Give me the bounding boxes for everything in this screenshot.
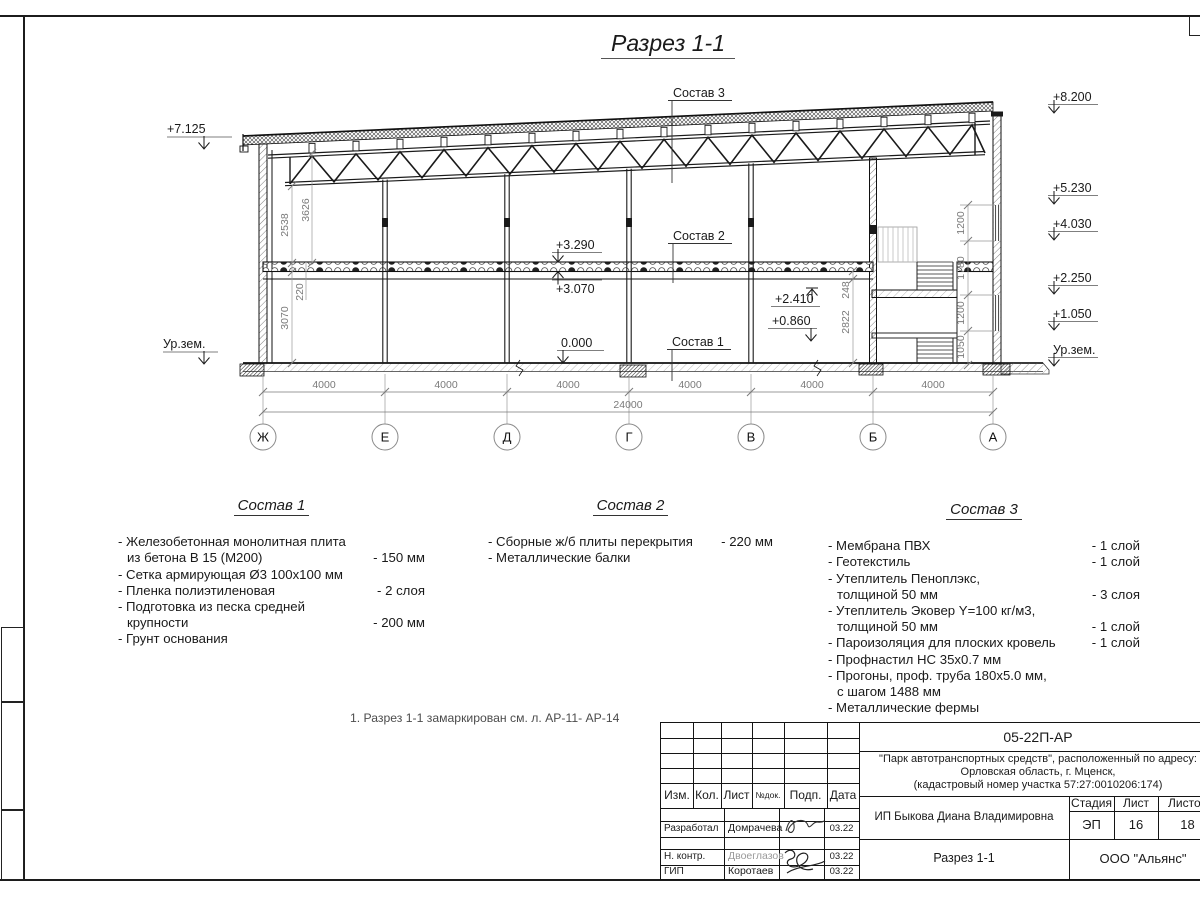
tb-stage-label: Стадия xyxy=(1069,796,1114,811)
composition-3-title: Состав 3 xyxy=(946,501,1022,520)
dims-bottom: 4000 4000 4000 4000 4000 4000 24000 Ж Е … xyxy=(250,374,1006,450)
callout-sostav-3: Состав 3 xyxy=(673,86,725,100)
elev-mezz-bot: +0.860 xyxy=(772,314,811,328)
tb-client: ИП Быкова Диана Владимировна xyxy=(859,796,1069,839)
tb-role-developer: Разработал xyxy=(664,821,722,837)
elev-right-2: +5.230 xyxy=(1053,181,1092,195)
list-item: крупности- 200 мм xyxy=(118,615,425,631)
sheet-note: 1. Разрез 1-1 замаркирован см. л. АР-11-… xyxy=(350,711,619,725)
tb-name-gip: Коротаев xyxy=(728,865,778,879)
elev-slab-bot: +3.070 xyxy=(556,282,595,296)
tb-role-gip: ГИП xyxy=(664,865,722,879)
tb-project-line3: (кадастровый номер участка 57:27:0010206… xyxy=(859,779,1200,792)
tb-name-developer: Домрачева xyxy=(728,821,778,837)
tb-col-izm: Изм. xyxy=(661,783,693,808)
list-item: - Утеплитель Пеноплэкс, xyxy=(828,571,1140,587)
dim-1200-lower: 1200 xyxy=(955,301,967,325)
callouts: Состав 3 Состав 2 Состав 1 xyxy=(667,86,732,381)
list-item: толщиной 50 мм- 1 слой xyxy=(828,619,1140,635)
axis-label: Е xyxy=(381,430,390,445)
wall-left xyxy=(259,144,267,363)
dim-2538: 2538 xyxy=(279,213,291,237)
list-item: - Геотекстиль- 1 слой xyxy=(828,554,1140,570)
tb-doc-number: 05-22П-АР xyxy=(859,723,1200,751)
composition-2: Состав 2 - Сборные ж/б плиты перекрытия-… xyxy=(488,498,773,567)
dim-3626: 3626 xyxy=(300,198,312,222)
axis-label: В xyxy=(747,430,756,445)
dim-2822: 2822 xyxy=(840,310,852,334)
dims-chain: 1200 1780 1200 1050 xyxy=(955,201,995,369)
footing-g xyxy=(620,365,646,377)
tb-sheet-label: Лист xyxy=(1114,796,1158,811)
callout-sostav-1: Состав 1 xyxy=(672,335,724,349)
tb-company: ООО "Альянс" xyxy=(1069,839,1200,879)
bay-dim: 4000 xyxy=(556,379,580,391)
dim-3070: 3070 xyxy=(279,306,291,330)
list-item: - Пароизоляция для плоских кровель- 1 сл… xyxy=(828,635,1140,651)
list-item: - Подготовка из песка средней xyxy=(118,599,425,615)
elev-slab-top: +3.290 xyxy=(556,238,595,252)
window-lower xyxy=(994,295,1001,331)
tb-project-line1: "Парк автотранспортных средств", располо… xyxy=(859,753,1200,766)
tb-drawing-name: Разрез 1-1 xyxy=(859,839,1069,879)
list-item: - Сборные ж/б плиты перекрытия- 220 мм xyxy=(488,534,773,550)
ground-label-right: Ур.зем. xyxy=(1053,343,1095,357)
ground-slab xyxy=(240,360,1049,377)
list-item: - Пленка полиэтиленовая- 2 слоя xyxy=(118,583,425,599)
axis-label: Г xyxy=(625,430,632,445)
dim-220: 220 xyxy=(294,283,306,301)
window-upper xyxy=(994,205,1001,241)
tb-name-ncontrol: Двоеглазов xyxy=(728,849,778,865)
footing-zh xyxy=(240,364,264,376)
axis-label: Ж xyxy=(257,430,269,445)
stair-treads-lower xyxy=(917,338,953,363)
wall-b-axis xyxy=(870,158,877,363)
total-dim: 24000 xyxy=(613,399,642,411)
stair-landing-lower xyxy=(872,333,957,338)
elev-left-roof: +7.125 xyxy=(167,122,206,136)
stair-railing-grid xyxy=(878,227,917,262)
staircase xyxy=(872,227,957,363)
dims-right-inner: 248 2822 xyxy=(840,267,857,367)
axis-bubbles: Ж Е Д Г В Б А xyxy=(250,424,1006,450)
list-item: - Сетка армирующая Ø3 100x100 мм xyxy=(118,567,425,583)
list-item: - Прогоны, проф. труба 180x5.0 мм, xyxy=(828,668,1140,684)
tb-sheets-value: 18 xyxy=(1158,811,1200,839)
tb-col-list: Лист xyxy=(721,783,752,808)
ground-label-left: Ур.зем. xyxy=(163,337,205,351)
tb-col-podp: Подп. xyxy=(784,783,827,808)
footing-b xyxy=(859,364,883,375)
axis-label: Б xyxy=(869,430,878,445)
composition-1: Состав 1 - Железобетонная монолитная пли… xyxy=(118,498,425,648)
tb-role-ncontrol: Н. контр. xyxy=(664,849,722,865)
stair-landing-upper xyxy=(872,290,957,298)
list-item: - Железобетонная монолитная плита xyxy=(118,534,425,550)
composition-2-title: Состав 2 xyxy=(593,497,669,516)
elev-right-5: +1.050 xyxy=(1053,307,1092,321)
bay-dim: 4000 xyxy=(800,379,824,391)
bay-dim: 4000 xyxy=(921,379,945,391)
list-item: - Металлические фермы xyxy=(828,700,1140,716)
list-item: с шагом 1488 мм xyxy=(828,684,1140,700)
list-item: - Металлические балки xyxy=(488,550,773,566)
elev-zero: 0.000 xyxy=(561,336,592,350)
floor-slab xyxy=(263,262,993,279)
axis-label: А xyxy=(989,430,998,445)
tb-date-developer: 03.22 xyxy=(824,821,859,837)
elev-right-3: +4.030 xyxy=(1053,217,1092,231)
tb-project-line2: Орловская область, г. Мценск, xyxy=(859,766,1200,779)
parapet-cap xyxy=(991,112,1003,117)
bay-dim: 4000 xyxy=(678,379,702,391)
footing-a xyxy=(983,364,1010,375)
axis-label: Д xyxy=(503,430,512,445)
callout-sostav-2: Состав 2 xyxy=(673,229,725,243)
tb-col-data: Дата xyxy=(827,783,859,808)
title-block: Изм. Кол. Лист №док. Подп. Дата Разработ… xyxy=(660,722,1200,880)
dim-1780: 1780 xyxy=(955,256,967,280)
signature-developer xyxy=(782,815,827,839)
list-item: - Грунт основания xyxy=(118,631,425,647)
gutter-edge xyxy=(240,146,248,152)
tb-sheets-label: Листов xyxy=(1158,796,1200,811)
elev-right-4: +2.250 xyxy=(1053,271,1092,285)
list-item: - Мембрана ПВХ- 1 слой xyxy=(828,538,1140,554)
tb-col-ndok: №док. xyxy=(752,783,784,808)
dim-1050: 1050 xyxy=(955,335,967,359)
tb-sheet-value: 16 xyxy=(1114,811,1158,839)
bay-dim: 4000 xyxy=(312,379,336,391)
composition-3: Состав 3 - Мембрана ПВХ- 1 слой - Геотек… xyxy=(828,502,1140,716)
list-item: из бетона В 15 (М200)- 150 мм xyxy=(118,550,425,566)
elev-right-1: +8.200 xyxy=(1053,90,1092,104)
tb-col-kol: Кол. xyxy=(693,783,721,808)
signature-gip xyxy=(779,843,837,881)
tb-stage-value: ЭП xyxy=(1069,811,1114,839)
list-item: толщиной 50 мм- 3 слоя xyxy=(828,587,1140,603)
bay-dim: 4000 xyxy=(434,379,458,391)
dim-248: 248 xyxy=(840,281,852,299)
list-item: - Утеплитель Эковер Y=100 кг/м3, xyxy=(828,603,1140,619)
composition-1-title: Состав 1 xyxy=(234,497,310,516)
dim-1200-upper: 1200 xyxy=(955,211,967,235)
stair-treads-upper xyxy=(917,262,953,290)
list-item: - Профнастил НС 35x0.7 мм xyxy=(828,652,1140,668)
